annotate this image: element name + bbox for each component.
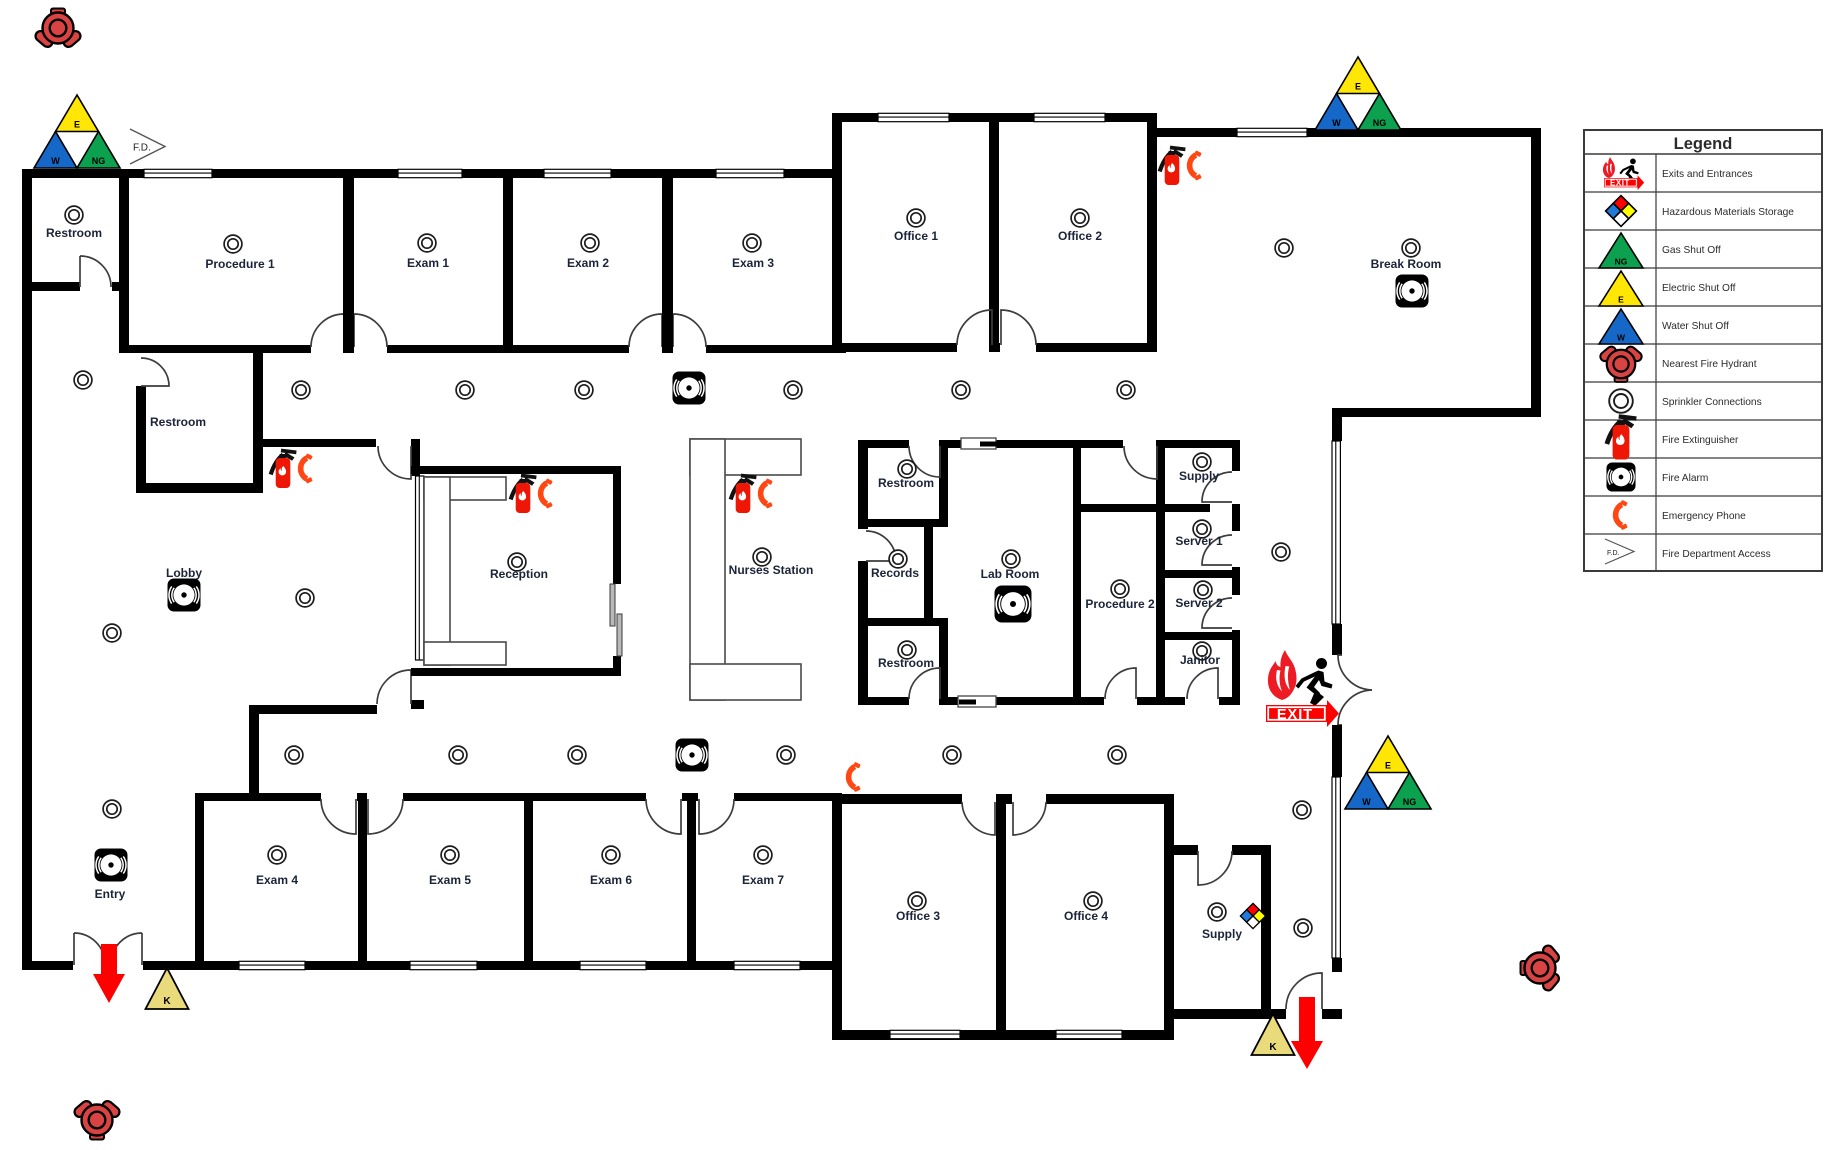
svg-text:Legend: Legend xyxy=(1674,135,1733,153)
svg-text:Emergency Phone: Emergency Phone xyxy=(1662,511,1746,522)
svg-text:Records: Records xyxy=(871,566,919,580)
svg-text:Reception: Reception xyxy=(490,567,548,581)
svg-text:F.D.: F.D. xyxy=(1607,550,1620,557)
svg-text:Exam 4: Exam 4 xyxy=(256,873,298,887)
svg-text:NG: NG xyxy=(1615,257,1628,267)
svg-text:Restroom: Restroom xyxy=(46,226,102,240)
svg-text:Water Shut Off: Water Shut Off xyxy=(1662,321,1729,332)
svg-text:Fire Department Access: Fire Department Access xyxy=(1662,549,1771,560)
svg-text:Restroom: Restroom xyxy=(878,476,934,490)
svg-text:Restroom: Restroom xyxy=(150,415,206,429)
svg-text:Break Room: Break Room xyxy=(1371,257,1442,271)
svg-text:Exam 5: Exam 5 xyxy=(429,873,471,887)
svg-text:Office 2: Office 2 xyxy=(1058,229,1102,243)
svg-text:Nurses Station: Nurses Station xyxy=(729,563,814,577)
svg-text:W: W xyxy=(1617,333,1626,343)
svg-text:Restroom: Restroom xyxy=(878,656,934,670)
svg-text:Janitor: Janitor xyxy=(1180,653,1220,667)
svg-text:Exits and Entrances: Exits and Entrances xyxy=(1662,169,1753,180)
svg-text:Sprinkler Connections: Sprinkler Connections xyxy=(1662,397,1762,408)
svg-text:Supply: Supply xyxy=(1202,927,1242,941)
svg-text:Fire Alarm: Fire Alarm xyxy=(1662,473,1708,484)
svg-text:Gas Shut Off: Gas Shut Off xyxy=(1662,245,1721,256)
svg-text:E: E xyxy=(1618,295,1624,305)
svg-text:Exam 2: Exam 2 xyxy=(567,256,609,270)
svg-text:Office 3: Office 3 xyxy=(896,909,940,923)
svg-text:Procedure 2: Procedure 2 xyxy=(1085,597,1155,611)
svg-text:Lab Room: Lab Room xyxy=(981,567,1040,581)
svg-text:Hazardous Materials Storage: Hazardous Materials Storage xyxy=(1662,207,1794,218)
svg-text:Exam 3: Exam 3 xyxy=(732,256,774,270)
svg-text:Entry: Entry xyxy=(95,887,126,901)
svg-text:Server 1: Server 1 xyxy=(1175,534,1223,548)
svg-text:Procedure 1: Procedure 1 xyxy=(205,257,275,271)
svg-text:Exam 6: Exam 6 xyxy=(590,873,632,887)
svg-text:Office 1: Office 1 xyxy=(894,229,938,243)
svg-text:Office 4: Office 4 xyxy=(1064,909,1108,923)
svg-text:Exam 7: Exam 7 xyxy=(742,873,784,887)
svg-text:Exam 1: Exam 1 xyxy=(407,256,449,270)
svg-text:Electric Shut Off: Electric Shut Off xyxy=(1662,283,1736,294)
svg-text:Server 2: Server 2 xyxy=(1175,596,1223,610)
svg-text:Nearest Fire Hydrant: Nearest Fire Hydrant xyxy=(1662,359,1757,370)
svg-text:Lobby: Lobby xyxy=(166,566,202,580)
svg-text:Supply: Supply xyxy=(1179,469,1219,483)
svg-text:Fire Extinguisher: Fire Extinguisher xyxy=(1662,435,1739,446)
